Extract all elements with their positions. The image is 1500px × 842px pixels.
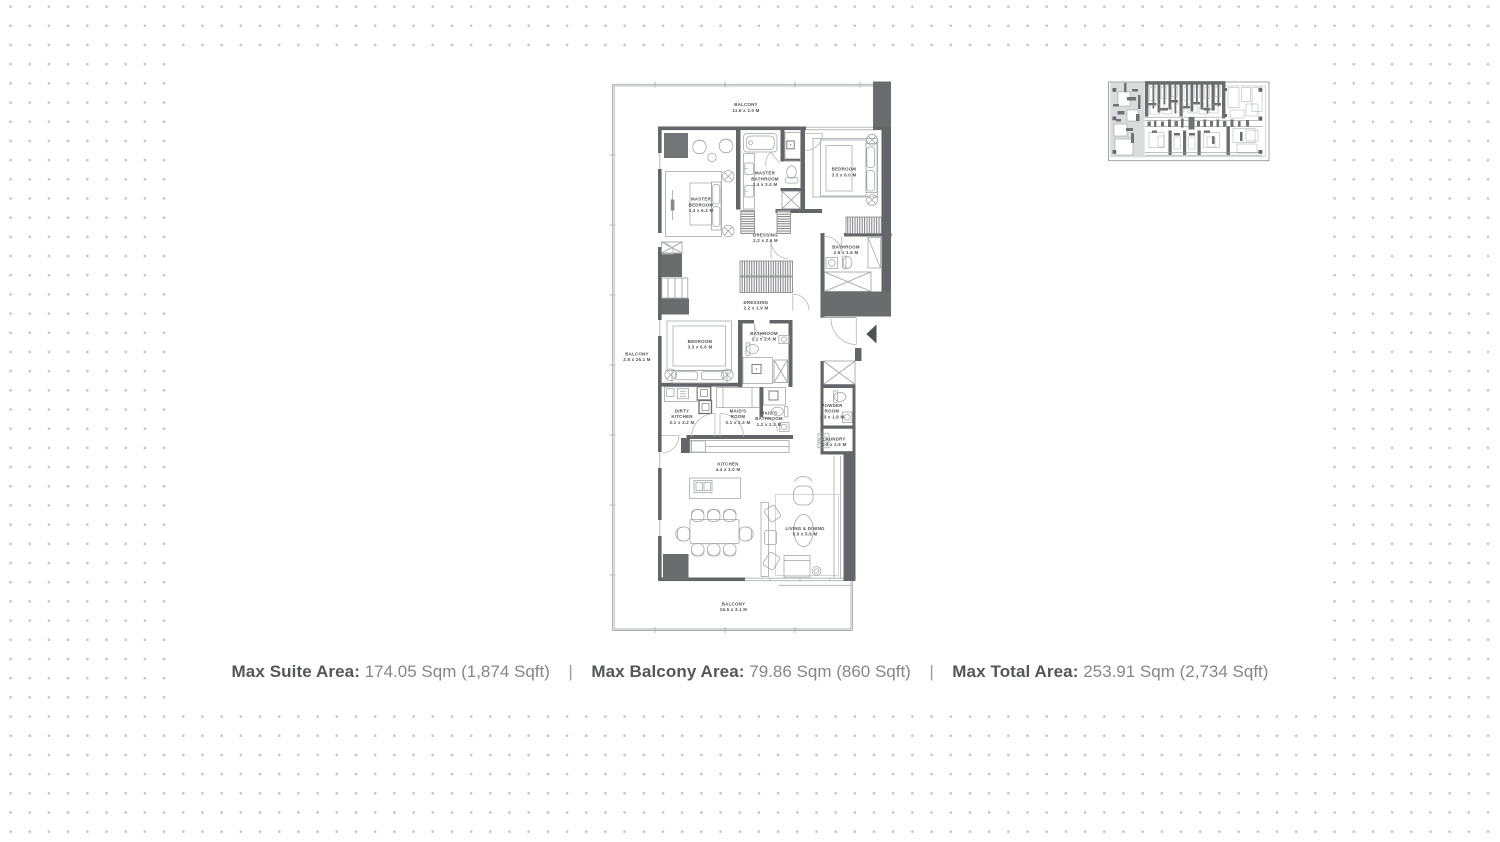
svg-text:BALCONY: BALCONY: [734, 102, 757, 107]
svg-text:DRESSING: DRESSING: [744, 300, 769, 305]
svg-text:3.3 x 6.0 M: 3.3 x 6.0 M: [832, 172, 857, 177]
svg-text:2.1 x 2.2 M: 2.1 x 2.2 M: [670, 420, 695, 425]
svg-text:2.1 x 2.2 M: 2.1 x 2.2 M: [726, 420, 751, 425]
svg-text:BATHROOM: BATHROOM: [832, 244, 860, 249]
svg-text:BATHROOM: BATHROOM: [751, 176, 779, 181]
svg-text:2.8 x 26.1 M: 2.8 x 26.1 M: [623, 357, 651, 362]
svg-text:MAID'S: MAID'S: [730, 408, 747, 413]
svg-text:BATHROOM: BATHROOM: [750, 331, 778, 336]
svg-text:BALCONY: BALCONY: [625, 351, 648, 356]
svg-text:2.1 x 2.6 M: 2.1 x 2.6 M: [752, 337, 777, 342]
svg-text:LAUNDRY: LAUNDRY: [822, 436, 845, 441]
svg-text:LIVING & DINING: LIVING & DINING: [785, 526, 825, 531]
svg-text:1.3 x 1.8 M: 1.3 x 1.8 M: [820, 414, 845, 419]
svg-text:3.3 x 6.3 M: 3.3 x 6.3 M: [689, 208, 714, 213]
svg-text:16.5 x 3.1 M: 16.5 x 3.1 M: [720, 607, 748, 612]
svg-text:MAID'S: MAID'S: [761, 410, 778, 415]
svg-text:1.2 x 2.2 M: 1.2 x 2.2 M: [757, 422, 782, 427]
svg-text:3.3 x 6.6 M: 3.3 x 6.6 M: [688, 345, 713, 350]
svg-text:DRESSING: DRESSING: [753, 232, 778, 237]
svg-text:MASTER: MASTER: [691, 197, 712, 202]
svg-text:BEDROOM: BEDROOM: [688, 339, 713, 344]
svg-text:POWDER: POWDER: [821, 403, 843, 408]
svg-text:3.4 x 3.4 M: 3.4 x 3.4 M: [753, 182, 778, 187]
svg-text:BEDROOM: BEDROOM: [689, 202, 714, 207]
svg-text:ROOM: ROOM: [825, 409, 840, 414]
svg-text:4.4 x 3.0 M: 4.4 x 3.0 M: [716, 467, 741, 472]
svg-text:5.0 x 5.6 M: 5.0 x 5.6 M: [793, 532, 818, 537]
svg-text:KITCHEN: KITCHEN: [717, 461, 738, 466]
svg-text:2.2 x 1.9 M: 2.2 x 1.9 M: [744, 306, 769, 311]
svg-text:2.2 x 2.6 M: 2.2 x 2.6 M: [753, 238, 778, 243]
svg-text:BATHROOM: BATHROOM: [755, 416, 783, 421]
svg-text:1.3 x 1.6 M: 1.3 x 1.6 M: [822, 442, 847, 447]
svg-text:11.6 x 2.0 M: 11.6 x 2.0 M: [732, 108, 759, 113]
svg-text:DIRTY: DIRTY: [675, 408, 689, 413]
svg-text:KITCHEN: KITCHEN: [671, 414, 692, 419]
svg-text:BALCONY: BALCONY: [722, 601, 745, 606]
svg-text:2.6 x 1.6 M: 2.6 x 1.6 M: [834, 250, 859, 255]
svg-text:BEDROOM: BEDROOM: [832, 167, 857, 172]
svg-text:MASTER: MASTER: [755, 171, 776, 176]
svg-text:ROOM: ROOM: [731, 414, 746, 419]
